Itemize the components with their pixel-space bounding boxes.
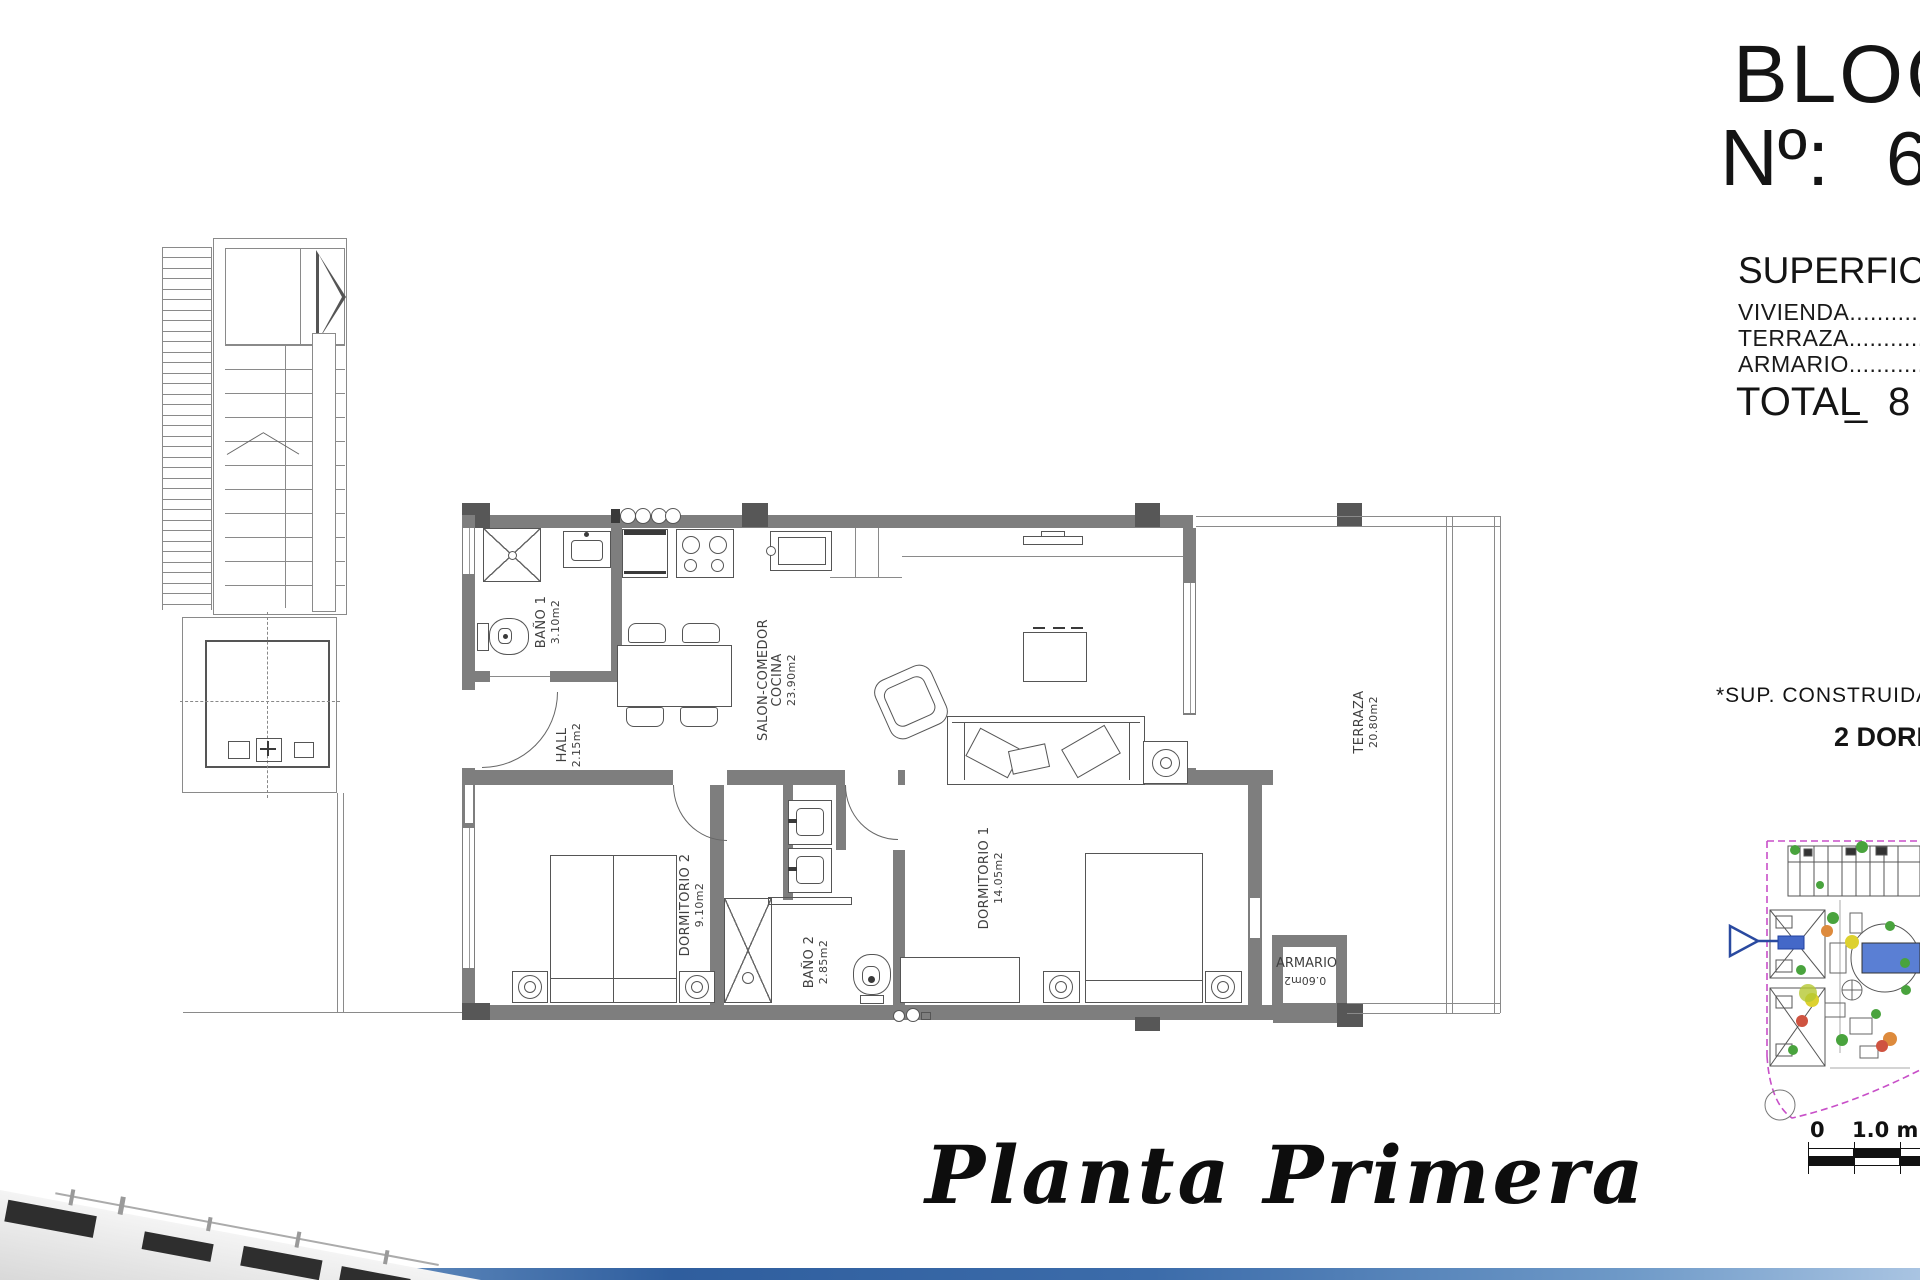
window-pane-line xyxy=(1190,583,1191,713)
row-leader: ........................................… xyxy=(1849,325,1920,351)
row-label: ARMARIO xyxy=(1738,351,1849,377)
sink-faucet xyxy=(584,532,589,537)
elevator-door-part xyxy=(294,742,314,758)
terrace-bottom-line xyxy=(1347,1013,1500,1014)
room-label-armario: ARMARIO xyxy=(1276,956,1337,971)
wall-right-dorm1 xyxy=(1248,785,1262,1005)
nightstand-lamp-inner xyxy=(1217,981,1229,993)
room-label-armario-area: 0.60m2 xyxy=(1284,974,1326,987)
wall-corridor-c1 xyxy=(898,770,905,785)
stair-hatch-strip xyxy=(162,247,212,610)
entry-door-opening xyxy=(462,690,475,768)
window-salon xyxy=(1183,583,1196,713)
room-label-dorm1: DORMITORIO 1 14.05m2 xyxy=(978,827,1006,930)
room-area: 14.05m2 xyxy=(992,827,1006,930)
scale-cell xyxy=(1900,1157,1920,1166)
superficie-title: SUPERFICIE xyxy=(1738,250,1920,292)
counter-long-edge xyxy=(902,556,1183,557)
stair-center-divider xyxy=(285,345,286,608)
stove-burner xyxy=(684,559,697,572)
room-name: DORMITORIO 2 xyxy=(679,854,693,957)
room-name: DORMITORIO 1 xyxy=(978,827,992,930)
coffee-table xyxy=(1023,632,1087,682)
vanity-counter xyxy=(768,897,852,905)
room-label-dorm2: DORMITORIO 2 9.10m2 xyxy=(679,854,707,957)
photo-balcony-shadow xyxy=(4,1200,97,1238)
terrace-rail-line xyxy=(1452,516,1453,1013)
site-location-arrow-icon xyxy=(1730,926,1778,956)
sofa-armrest xyxy=(964,722,965,780)
photo-balcony-shadow xyxy=(240,1246,322,1280)
bano1-slider-line xyxy=(490,676,550,677)
note-dormitorios: 2 DORM xyxy=(1834,722,1920,753)
shower-drain xyxy=(742,972,754,984)
post-top-salon xyxy=(1135,503,1160,527)
window-bano1 xyxy=(462,528,475,574)
coffee-table-dash xyxy=(1071,627,1083,629)
room-area: 2.15m2 xyxy=(570,723,584,768)
vanity-basin xyxy=(796,856,824,884)
coffee-table-dash xyxy=(1053,627,1065,629)
sofa xyxy=(947,716,1145,785)
core-wall-line xyxy=(343,793,344,1013)
tv-niche-step xyxy=(1041,531,1065,537)
site-plan-map xyxy=(1700,818,1920,1148)
room-area: 9.10m2 xyxy=(693,854,707,957)
elevator-centerline-vertical xyxy=(267,612,268,798)
toilet-tank-bano1 xyxy=(477,623,489,651)
site-selected-unit xyxy=(1778,936,1804,949)
room-name: BAÑO 1 xyxy=(535,596,549,649)
room-name: SALON-COMEDOR xyxy=(757,619,771,741)
floor-plan-sheet: BAÑO 1 3.10m2 HALL 2.15m2 SALON-COMEDOR … xyxy=(0,0,1920,1280)
ground-line xyxy=(183,1012,463,1013)
threshold-detail xyxy=(906,1008,920,1022)
beds-divider xyxy=(613,855,614,1003)
pipe-circle xyxy=(665,508,681,524)
scale-cell xyxy=(1854,1148,1900,1157)
armchair xyxy=(870,660,953,744)
counter-divider xyxy=(878,528,879,578)
dining-table xyxy=(617,645,732,707)
post-bottom xyxy=(1135,1017,1160,1031)
total-label: TOTAL xyxy=(1736,380,1861,425)
nightstand-lamp-inner xyxy=(691,981,703,993)
room-area: 3.10m2 xyxy=(549,596,563,649)
total-separator: _ xyxy=(1845,380,1867,425)
elevator-door-cross-v xyxy=(267,741,269,756)
room-name-2: COCINA xyxy=(771,619,785,741)
counter-line xyxy=(830,577,902,578)
shower-bano2 xyxy=(724,898,772,1003)
wall-vanity-east xyxy=(836,785,846,850)
scale-zero-label: 0 xyxy=(1810,1118,1825,1142)
toilet-tank-bano2 xyxy=(860,995,884,1004)
site-boundary xyxy=(1767,841,1920,1118)
scale-cell xyxy=(1900,1148,1920,1157)
note-sup-construidas: *SUP. CONSTRUIDAS xyxy=(1716,684,1920,708)
wall-bottom xyxy=(462,1005,1285,1020)
superficie-row-vivienda: VIVIENDA................................… xyxy=(1738,299,1920,326)
row-leader: ........................................… xyxy=(1849,351,1920,377)
photo-railing-post xyxy=(383,1250,390,1264)
kitchen-stove xyxy=(676,529,734,578)
terrace-rail-line xyxy=(1446,516,1447,1013)
elevator-door-part xyxy=(256,738,282,762)
entry-door-arc xyxy=(482,692,558,768)
site-pool-area xyxy=(1851,924,1920,992)
room-area: 23.90m2 xyxy=(785,619,799,741)
fridge-top-band xyxy=(624,530,666,535)
elevator-door-part xyxy=(228,741,250,759)
wall-corridor-b xyxy=(727,770,845,785)
scale-cell xyxy=(1854,1157,1900,1166)
site-street-furniture xyxy=(1825,913,1878,1058)
armario-post xyxy=(1337,1003,1363,1027)
stair-railing xyxy=(312,333,336,612)
room-area: 2.85m2 xyxy=(817,936,831,989)
bloc-number-label: Nº: xyxy=(1720,112,1829,204)
room-label-salon: SALON-COMEDOR COCINA 23.90m2 xyxy=(757,619,799,741)
terrace-rail-line xyxy=(1494,516,1495,1013)
scale-cell xyxy=(1808,1157,1854,1166)
toilet-dot xyxy=(503,634,508,639)
vanity-basin xyxy=(796,808,824,836)
superficie-row-terraza: TERRAZA.................................… xyxy=(1738,325,1920,352)
core-wall-line xyxy=(337,793,338,1013)
window-slot-dorm1 xyxy=(1250,898,1260,938)
elevator-centerline-horizontal xyxy=(180,701,340,702)
room-label-hall: HALL 2.15m2 xyxy=(556,723,584,768)
fridge-bottom-band xyxy=(624,571,666,574)
scale-bar: 0 1.0 m. xyxy=(1800,1118,1920,1178)
sofa-back-line xyxy=(952,722,1140,723)
window-pane-line xyxy=(469,528,470,574)
terrace-rail-line xyxy=(1500,516,1501,1013)
room-label-bano1: BAÑO 1 3.10m2 xyxy=(535,596,563,649)
room-area: 20.80m2 xyxy=(1367,690,1381,753)
kitchen-sink-basin xyxy=(778,537,826,565)
dining-chair xyxy=(628,623,666,643)
side-table-lamp-inner xyxy=(1160,757,1172,769)
bed-fold-line xyxy=(1085,980,1203,981)
nightstand-lamp-inner xyxy=(1055,981,1067,993)
armchair-cushion xyxy=(881,673,938,729)
pipe-circle xyxy=(635,508,651,524)
stove-burner xyxy=(682,536,700,554)
armario-wall-bottom xyxy=(1273,1003,1337,1023)
terrace-top-line xyxy=(1196,526,1500,527)
scale-one-meter-label: 1.0 m. xyxy=(1852,1118,1920,1142)
beds-fold-line xyxy=(550,978,677,979)
site-building-top xyxy=(1788,846,1920,896)
row-label: TERRAZA xyxy=(1738,325,1849,351)
wall-corridor-a xyxy=(462,770,673,785)
terrace-top-line xyxy=(1196,516,1500,517)
sheet-title: Planta Primera xyxy=(925,1128,1646,1222)
armario-wall-top xyxy=(1272,935,1347,947)
threshold-detail xyxy=(921,1012,931,1020)
shower-drain xyxy=(508,551,517,560)
photo-balcony-shadow xyxy=(142,1231,214,1262)
window-dorm2 xyxy=(462,828,475,968)
sink-basin xyxy=(571,540,603,561)
bano2-door-arc xyxy=(845,785,898,840)
nightstand-lamp-inner xyxy=(524,981,536,993)
building-photo-fragment xyxy=(0,1172,500,1280)
sofa-armrest xyxy=(1129,722,1130,780)
armario-wall-right xyxy=(1336,947,1347,1003)
kitchen-faucet xyxy=(766,546,776,556)
stove-burner xyxy=(711,559,724,572)
post-bottom-left xyxy=(462,1003,490,1020)
dining-chair xyxy=(626,707,664,727)
room-name: BAÑO 2 xyxy=(803,936,817,989)
photo-railing-post xyxy=(206,1217,213,1231)
total-value: 8 xyxy=(1888,380,1910,425)
room-label-terraza: TERRAZA 20.80m2 xyxy=(1353,690,1381,753)
stove-burner xyxy=(709,536,727,554)
coffee-table-dash xyxy=(1033,627,1045,629)
dining-chair xyxy=(680,707,718,727)
terrace-bottom-line xyxy=(1347,1003,1500,1004)
scale-cell xyxy=(1808,1148,1854,1157)
dining-chair xyxy=(682,623,720,643)
pipe-box xyxy=(611,509,620,523)
threshold-detail xyxy=(893,1010,905,1022)
wall-jog xyxy=(1183,770,1273,785)
sofa-pillow xyxy=(1061,725,1121,779)
bloc-title: BLOC xyxy=(1733,28,1920,122)
pipe-circle xyxy=(620,508,636,524)
toilet-dot xyxy=(868,976,875,983)
row-label: VIVIENDA xyxy=(1738,299,1849,325)
superficie-row-armario: ARMARIO.................................… xyxy=(1738,351,1920,378)
photo-balcony-shadow xyxy=(339,1266,411,1280)
wall-top xyxy=(462,515,1193,528)
dorm2-door-arc xyxy=(673,785,727,841)
room-name: TERRAZA xyxy=(1353,690,1367,753)
row-leader: ........................................… xyxy=(1849,299,1920,325)
window-pane-line xyxy=(469,828,470,968)
counter-divider xyxy=(855,528,856,578)
stair-landing-divider xyxy=(300,248,301,345)
vanity-faucet xyxy=(788,867,797,871)
post-terrace xyxy=(1337,503,1362,527)
vanity-faucet xyxy=(788,819,797,823)
tv-niche xyxy=(1023,536,1083,545)
post-top-kitchen xyxy=(742,503,768,527)
room-name: HALL xyxy=(556,723,570,768)
photo-building-slab xyxy=(0,1190,500,1280)
bloc-number-value: 6 xyxy=(1886,116,1920,203)
bench-dorm1 xyxy=(900,957,1020,1003)
room-label-bano2: BAÑO 2 2.85m2 xyxy=(803,936,831,989)
